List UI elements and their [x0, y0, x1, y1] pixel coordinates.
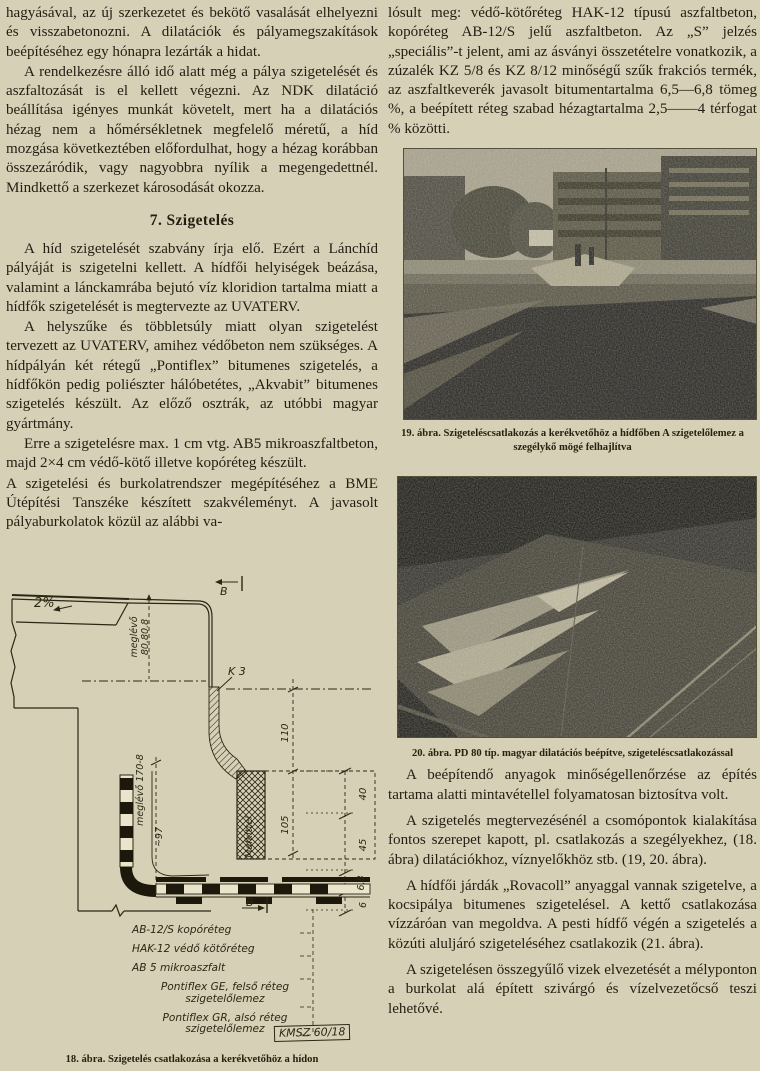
paragraph: A beépítendő anyagok minőségellenőrzése …: [388, 766, 757, 805]
legend-item: HAK-12 védő kötőréteg: [132, 944, 318, 956]
paragraph: A rendelkezésre álló idő alatt még a pál…: [6, 63, 378, 198]
dim-existing-side: meglévő 170-8: [135, 754, 146, 826]
slope-label: 2%: [34, 596, 55, 611]
figure-19-photo: [403, 148, 757, 420]
paragraph: Erre a szigetelésre max. 1 cm vtg. AB5 m…: [6, 435, 378, 474]
dim-6: 6: [358, 902, 369, 908]
dim-110: 110: [280, 724, 291, 743]
figure-20-caption: 20. ábra. PD 80 típ. magyar dilatációs b…: [388, 747, 757, 761]
legend-item: Pontiflex GE, felső réteg szigetelőlemez: [132, 982, 318, 1006]
paragraph: hagyásával, az új szerkezetet és bekötő …: [6, 4, 378, 62]
paragraph: A hídfői járdák „Rovacoll” anyaggal vann…: [388, 877, 757, 954]
figure-20-photo: [397, 476, 757, 738]
dim-105: 105: [280, 816, 291, 835]
dim-existing-angle-word: meglévő: [129, 617, 140, 658]
right-column: lósult meg: védő-kötőréteg HAK-12 típusú…: [388, 4, 757, 1067]
scanned-article-page: hagyásával, az új szerkezetet és bekötő …: [0, 0, 760, 1071]
legend-item: AB-12/S kopóréteg: [132, 925, 318, 937]
dim-40: 40: [358, 788, 369, 801]
paragraph: A szigetelésen összegyűlő vizek elvezeté…: [388, 961, 757, 1019]
section-marker-bottom: B: [246, 896, 254, 909]
dim-97: ~97: [154, 827, 165, 847]
bridge-deck-photo: [397, 476, 757, 738]
k3-label: K 3: [228, 665, 246, 678]
paragraph: A helyszűke és többletsúly miatt olyan s…: [6, 318, 378, 434]
legend-item: AB 5 mikroaszfalt: [132, 963, 318, 975]
paragraph: lósult meg: védő-kötőréteg HAK-12 típusú…: [388, 4, 757, 139]
dim-existing-angle-size: 80.80.8: [140, 619, 151, 655]
section-marker-top: B: [220, 585, 228, 598]
dim-6-8: 6,8: [356, 876, 367, 891]
paragraph: A szigetelési és burkolatrendszer megépí…: [6, 475, 378, 533]
figure-18-caption: 18. ábra. Szigetelés csatlakozása a keré…: [6, 1053, 378, 1067]
paragraph: A híd szigetelését szabvány írja elő. Ez…: [6, 240, 378, 317]
figure-19-caption: 19. ábra. Szigeteléscsatlakozás a kerékv…: [388, 427, 757, 455]
paragraph: A szigetelés megtervezésénél a csomópont…: [388, 812, 757, 870]
left-column: hagyásával, az új szerkezetet és bekötő …: [6, 4, 378, 1067]
figure-18-diagram: 2% B B K 3 meglévő 80.80.8 meglévő 170-8…: [6, 575, 378, 1045]
construction-site-photo: [403, 148, 757, 420]
section-heading: 7. Szigetelés: [6, 212, 378, 230]
drawing-number-stamp: KMSZ 60/18: [274, 1024, 351, 1042]
dim-45: 45: [358, 839, 369, 852]
mafkittel-label: Mafkittel: [244, 816, 255, 858]
